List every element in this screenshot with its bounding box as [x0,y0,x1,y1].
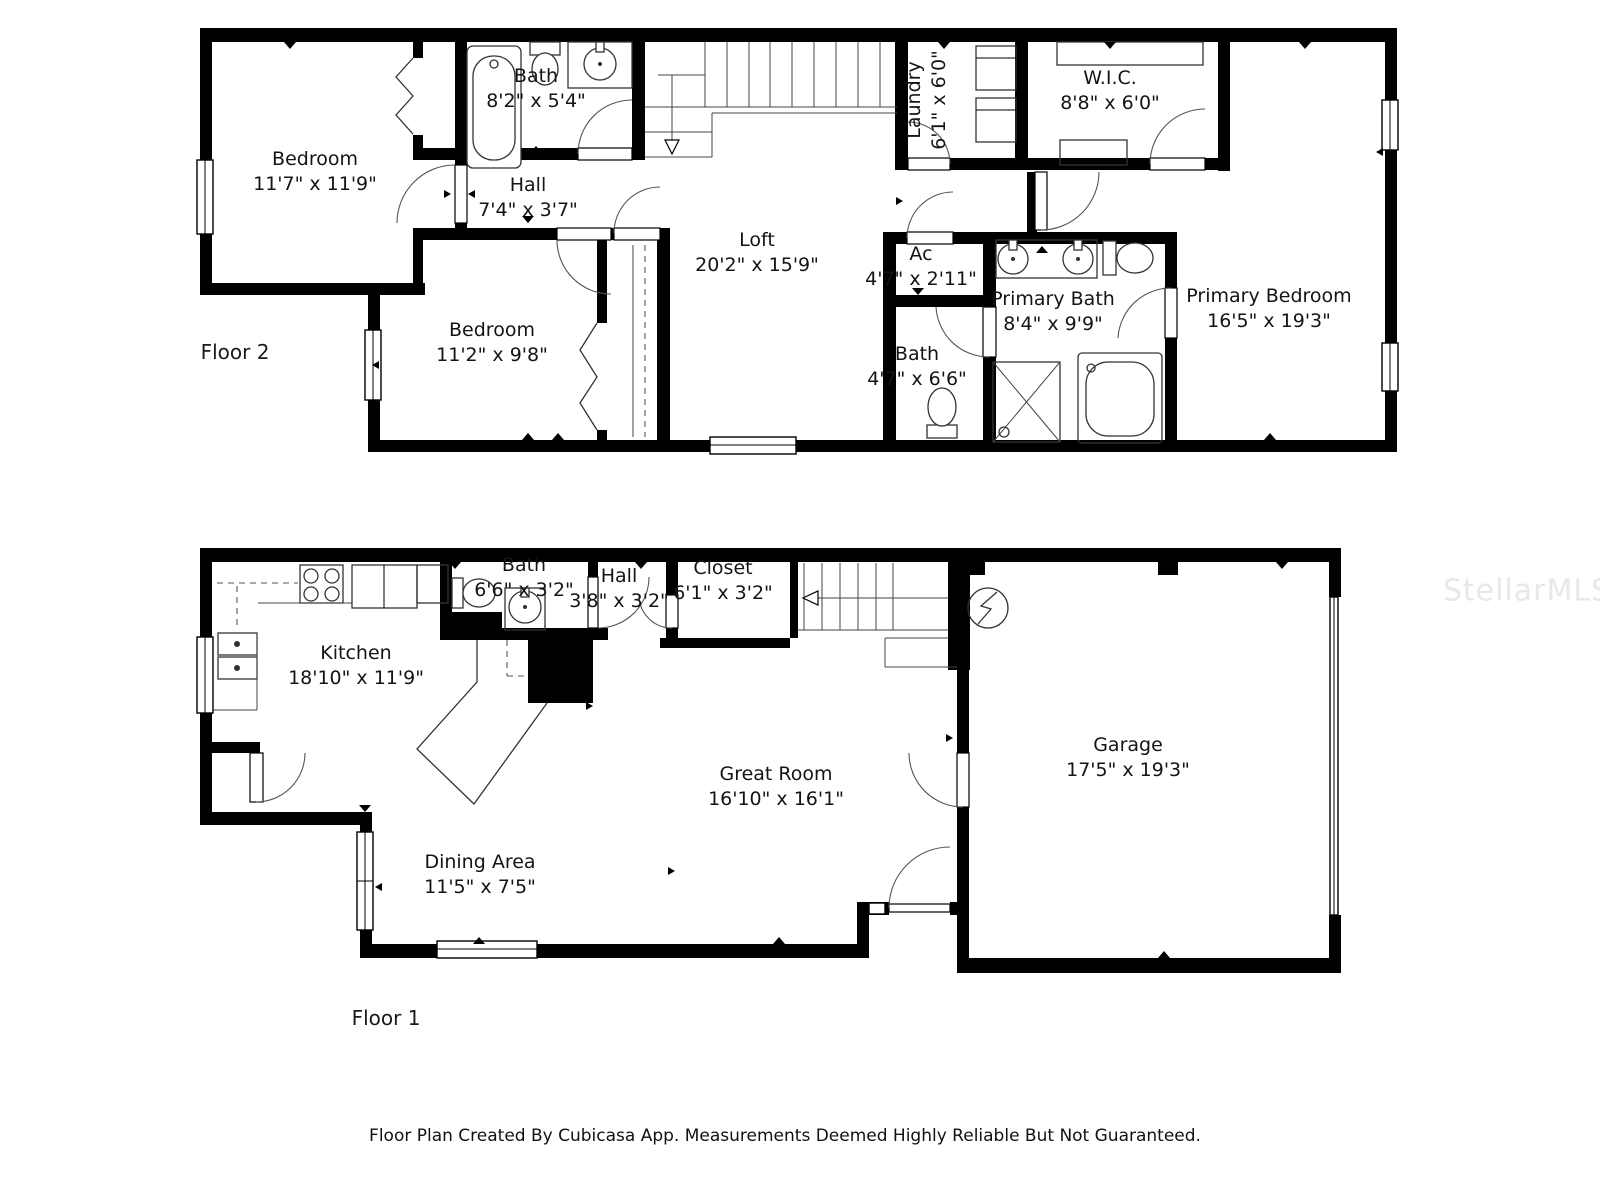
electrical-symbol-icon [968,588,1008,628]
room-label-wic: W.I.C.8'8" x 6'0" [1060,66,1160,116]
dryer-icon [976,98,1016,142]
room-label-hall-f1: Hall3'8" x 3'2" [569,564,669,614]
toilet-icon [927,425,957,438]
stellar-mls-watermark: StellarMLS [1443,574,1600,609]
room-label-dining-area: Dining Area11'5" x 7'5" [424,850,536,900]
kitchen-island-icon [417,640,547,804]
footer-disclaimer: Floor Plan Created By Cubicasa App. Meas… [369,1126,1201,1146]
garage-entry-door [957,753,969,807]
room-label-bedroom-2: Bedroom11'2" x 9'8" [436,318,548,368]
floor-plan-drawing [0,0,1600,1200]
room-label-laundry: Laundry6'1" x 6'0" [902,50,952,150]
floor1-label: Floor 1 [352,1006,421,1030]
toilet-icon [452,578,463,608]
floor2-label: Floor 2 [201,340,270,364]
room-label-great-room: Great Room16'10" x 16'1" [708,762,844,812]
washer-icon [976,46,1016,90]
floor1-stairs [798,563,957,667]
closet-bifold-icon [396,58,413,134]
floor2-stairs [645,42,897,157]
back-door [889,904,950,912]
room-label-bath-f1: Bath6'6" x 3'2" [474,553,574,603]
room-label-kitchen: Kitchen18'10" x 11'9" [288,641,424,691]
floor-plan-canvas: Bedroom11'7" x 11'9" Bath8'2" x 5'4" Hal… [0,0,1600,1200]
room-label-bath-f2: Bath8'2" x 5'4" [486,64,586,114]
room-label-bath2-f2: Bath4'7" x 6'6" [867,342,967,392]
bathtub-icon [1078,353,1162,443]
room-label-primary-bath: Primary Bath8'4" x 9'9" [991,287,1115,337]
room-label-garage: Garage17'5" x 19'3" [1066,733,1190,783]
room-label-primary-bedroom: Primary Bedroom16'5" x 19'3" [1186,284,1351,334]
room-label-closet: Closet6'1" x 3'2" [673,556,773,606]
closet-bifold-icon [580,323,597,430]
toilet-icon [1103,241,1116,275]
entry-door [250,753,263,802]
room-label-bedroom-1: Bedroom11'7" x 11'9" [253,147,377,197]
room-label-hall-f2: Hall7'4" x 3'7" [478,173,578,223]
room-label-loft: Loft20'2" x 15'9" [695,228,819,278]
room-label-ac: Ac4'7" x 2'11" [865,242,977,292]
